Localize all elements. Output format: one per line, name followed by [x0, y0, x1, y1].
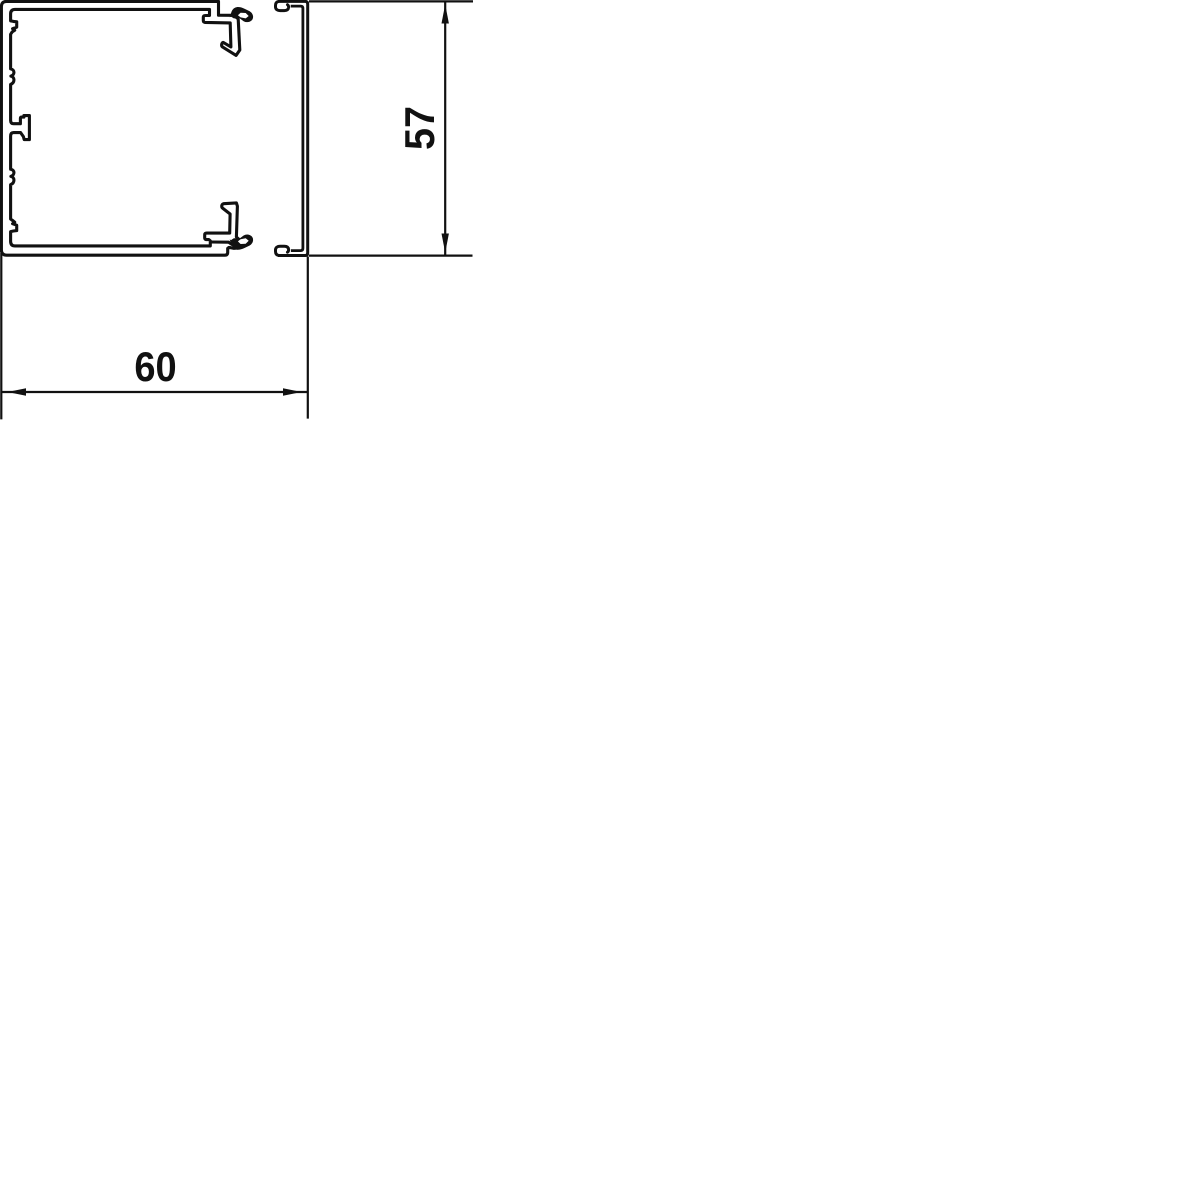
svg-text:57: 57: [396, 106, 443, 150]
svg-text:60: 60: [134, 343, 176, 390]
